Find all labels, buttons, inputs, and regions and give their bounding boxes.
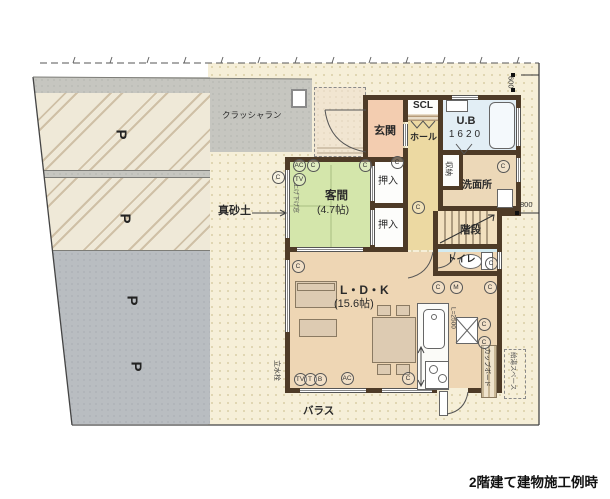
- label-ub-size: 1620: [446, 129, 486, 141]
- outlet-symbol-tv: TV: [293, 173, 306, 186]
- outlet-symbol-ac: AC: [293, 159, 306, 172]
- outlet-symbol-c: C: [412, 201, 425, 214]
- label-ub: U.B: [452, 115, 480, 128]
- label-masado: 真砂土: [218, 205, 251, 218]
- plan-lines: [0, 0, 610, 499]
- label-shuno: 収納: [444, 161, 453, 176]
- label-oshiire-1: 押入: [378, 176, 398, 188]
- post-dot: [515, 211, 519, 215]
- outlet-symbol-c: C: [497, 160, 510, 173]
- outlet-symbol-m: M: [450, 281, 463, 294]
- outlet-symbol-b: B: [314, 373, 327, 386]
- caption: 2階建て建物施工例時: [469, 471, 598, 491]
- parking-p-mark: P: [113, 129, 130, 139]
- label-ldk: L・D・K: [340, 284, 389, 298]
- outlet-symbol-c: C: [402, 372, 415, 385]
- label-crusher-run: クラッシャラン: [222, 111, 282, 121]
- label-water-tap: 立水栓: [272, 360, 280, 381]
- label-ldk-size: (15.6帖): [334, 298, 374, 311]
- label-senmenjo: 洗面所: [462, 180, 492, 192]
- dim-600: 600: [506, 76, 515, 89]
- label-scl: SCL: [413, 100, 433, 112]
- parking-p-mark: P: [128, 361, 145, 371]
- outlet-symbol-ac: AC: [341, 372, 354, 385]
- outlet-symbol-c: C: [485, 257, 498, 270]
- label-hall: ホール: [410, 132, 437, 142]
- outlet-symbol-c: C: [484, 281, 497, 294]
- label-oshiire-2: 押入: [378, 220, 398, 232]
- outlet-symbol-c: C: [292, 260, 305, 273]
- dim-800: 800: [520, 201, 533, 210]
- parking-p-mark: P: [117, 213, 134, 223]
- parking-p-mark: P: [124, 295, 141, 305]
- label-kyuto-space: 給湯スペース: [509, 352, 516, 390]
- label-toilet: トイレ: [447, 255, 476, 266]
- label-ballast: バラス: [303, 405, 334, 417]
- post-dot: [511, 88, 515, 92]
- outlet-symbol-c: C: [359, 159, 372, 172]
- outlet-symbol-c: C: [478, 336, 491, 349]
- outlet-symbol-c: C: [432, 281, 445, 294]
- label-genkan: 玄関: [374, 125, 396, 138]
- label-kyakuma: 客間: [325, 190, 348, 203]
- label-kyakuma-size: (4.7帖): [317, 204, 349, 216]
- outlet-symbol-c: C: [307, 159, 320, 172]
- label-window-note: 上げ下げ窓: [291, 183, 298, 213]
- label-counter-length: L=2500: [449, 307, 456, 329]
- label-kaidan: 階段: [460, 224, 481, 236]
- outlet-symbol-c: C: [391, 156, 404, 169]
- label-cupboard: カップボード: [483, 348, 490, 387]
- floor-plan: クラッシャラン 真砂土 バラス 立水栓 玄関 SCL ホール U.B 1620 …: [0, 0, 610, 499]
- outlet-symbol-c: C: [478, 318, 491, 331]
- outlet-symbol-c: C: [272, 171, 285, 184]
